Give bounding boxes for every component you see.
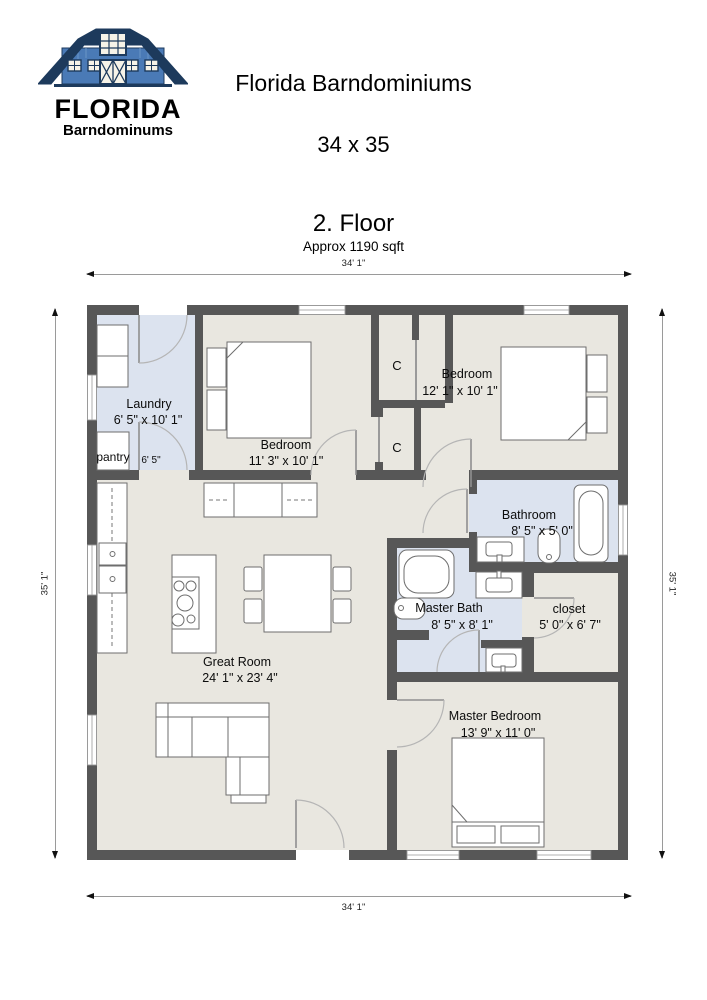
logo-brand-text: FLORIDA	[38, 96, 198, 123]
window-icon	[407, 851, 459, 860]
bedroom2-label: Bedroom	[442, 367, 493, 381]
bedroom2-dims: 12' 1" x 10' 1"	[422, 384, 498, 398]
laundry-dims: 6' 5" x 10' 1"	[114, 413, 183, 427]
dimension-bottom-label: 34' 1"	[0, 902, 707, 913]
dimension-top-label: 34' 1"	[0, 258, 707, 269]
window-icon	[619, 505, 628, 555]
master-bed-icon	[452, 738, 544, 847]
bathroom-dims: 8' 5" x 5' 0"	[511, 524, 573, 538]
bedroom1-bed-icon	[207, 342, 311, 438]
closet-bottom-label: C	[392, 440, 401, 455]
dimension-right-label: 35' 1"	[667, 554, 678, 614]
laundry-appliances-icon	[97, 325, 128, 387]
window-icon	[524, 306, 569, 315]
bedroom1-label: Bedroom	[261, 438, 312, 452]
master-bedroom-dims: 13' 9" x 11' 0"	[461, 726, 536, 740]
pantry-dims: 6' 5"	[141, 455, 161, 466]
bathtub-icon	[399, 550, 454, 598]
window-icon	[88, 715, 97, 765]
page-title: Florida Barndominiums	[0, 70, 707, 97]
floor-label: 2. Floor	[0, 210, 707, 238]
closet-dims: 5' 0" x 6' 7"	[539, 618, 601, 632]
sink-icon	[477, 537, 524, 562]
master-bedroom-label: Master Bedroom	[449, 709, 541, 723]
dimension-right-line	[662, 309, 663, 858]
floorplan-drawing: Laundry 6' 5" x 10' 1" pantry 6' 5" Bedr…	[87, 305, 628, 860]
great-room-label: Great Room	[203, 655, 271, 669]
closet-label: closet	[553, 602, 586, 616]
window-icon	[537, 851, 591, 860]
laundry-entry-opening	[139, 305, 187, 315]
dimension-left-label: 35' 1"	[40, 554, 51, 614]
kitchen-cabinets-icon	[204, 483, 317, 517]
window-icon	[88, 375, 97, 420]
area-label: Approx 1190 sqft	[0, 239, 707, 254]
dimension-left-line	[55, 309, 56, 858]
kitchen-island-icon	[172, 555, 216, 653]
window-icon	[299, 306, 345, 315]
closet-top-label: C	[392, 358, 401, 373]
kitchen-counter-icon	[97, 483, 127, 653]
master-bath-dims: 8' 5" x 8' 1"	[431, 618, 493, 632]
bedroom1-dims: 11' 3" x 10' 1"	[249, 454, 324, 468]
sink-icon	[486, 648, 522, 672]
dimension-bottom-line	[87, 896, 631, 897]
laundry-label: Laundry	[126, 397, 172, 411]
front-door-opening	[296, 850, 349, 860]
floorplan-page: FLORIDA Barndominums Florida Barndominiu…	[0, 0, 707, 1000]
bathroom-label: Bathroom	[502, 508, 556, 522]
master-bath-label: Master Bath	[415, 601, 482, 615]
bathtub-icon	[574, 485, 608, 562]
pantry-label: pantry	[96, 450, 129, 464]
great-room-dims: 24' 1" x 23' 4"	[202, 671, 278, 685]
dimension-top-line	[87, 274, 631, 275]
window-icon	[88, 545, 97, 595]
sink-icon	[476, 571, 522, 598]
plan-size-title: 34 x 35	[0, 132, 707, 158]
